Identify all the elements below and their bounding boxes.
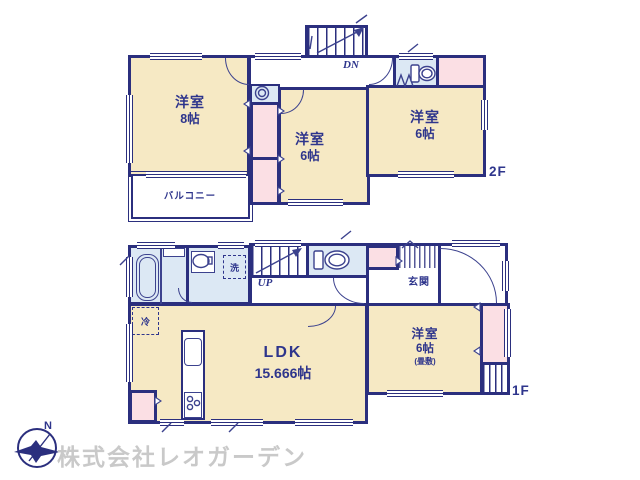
room-type: 洋室 bbox=[275, 130, 345, 148]
floor-2f-label: 2F bbox=[489, 163, 519, 181]
window bbox=[398, 171, 454, 178]
bathtub-icon bbox=[136, 254, 159, 301]
washbasin-2f bbox=[250, 84, 280, 104]
staircase-1f bbox=[249, 243, 309, 278]
room-2f-east-label: 洋室 6帖 bbox=[390, 108, 460, 142]
toilet-room-1f bbox=[306, 243, 369, 278]
room-size: 6帖 bbox=[390, 126, 460, 142]
closet-ldk bbox=[129, 390, 157, 423]
window bbox=[399, 53, 433, 60]
room-2f-west-label: 洋室 8帖 bbox=[150, 93, 230, 127]
window bbox=[255, 53, 301, 60]
room-type: 洋室 bbox=[385, 326, 465, 342]
window bbox=[126, 257, 133, 297]
company-watermark: 株式会社レオガーデン bbox=[57, 443, 477, 473]
washbasin-icon bbox=[191, 251, 215, 273]
bath-counter bbox=[163, 248, 185, 257]
bath-partition bbox=[160, 248, 162, 304]
window bbox=[218, 242, 244, 249]
window bbox=[150, 53, 202, 60]
room-size: 8帖 bbox=[150, 111, 230, 127]
window bbox=[295, 419, 353, 426]
closet-2f-northeast bbox=[436, 55, 486, 88]
window bbox=[126, 95, 133, 163]
window bbox=[504, 309, 511, 357]
kitchen-sink-icon bbox=[184, 338, 202, 366]
refrigerator-label: 冷 bbox=[141, 315, 150, 328]
window bbox=[137, 242, 175, 249]
refrigerator-space: 冷 bbox=[132, 307, 159, 335]
window bbox=[255, 240, 301, 247]
kitchen-stove-icon bbox=[184, 392, 202, 418]
room-type: LDK bbox=[228, 343, 338, 364]
entrance-step-hatch bbox=[399, 246, 439, 268]
compass-north-label: N bbox=[40, 419, 56, 433]
window bbox=[481, 100, 488, 130]
floor-1f-label: 1F bbox=[512, 382, 542, 400]
stairs-1f-corner bbox=[480, 362, 510, 395]
window bbox=[452, 240, 500, 247]
window bbox=[502, 261, 509, 291]
window bbox=[160, 419, 184, 426]
compass-icon bbox=[14, 429, 60, 467]
stairs-down-label: DN bbox=[338, 58, 364, 72]
room-size: 15.666帖 bbox=[228, 364, 338, 382]
entrance-label: 玄関 bbox=[398, 276, 440, 289]
staircase-2f bbox=[305, 25, 368, 58]
shoe-closet bbox=[366, 245, 399, 270]
room-note: (畳敷) bbox=[385, 357, 465, 367]
floorplan-canvas: 洗 冷 bbox=[0, 0, 640, 480]
stairs-up-label: UP bbox=[252, 276, 278, 290]
laundry-space: 洗 bbox=[223, 255, 246, 279]
room-2f-center-label: 洋室 6帖 bbox=[275, 130, 345, 164]
window-balcony-door bbox=[146, 171, 246, 178]
window bbox=[126, 324, 133, 382]
room-size: 6帖 bbox=[275, 148, 345, 164]
room-type: 洋室 bbox=[390, 108, 460, 126]
laundry-label: 洗 bbox=[230, 261, 239, 274]
room-size: 6帖 bbox=[385, 342, 465, 357]
balcony-label: バルコニー bbox=[131, 191, 249, 203]
ldk-label: LDK 15.666帖 bbox=[228, 343, 338, 382]
window bbox=[211, 419, 263, 426]
room-1f-east-label: 洋室 6帖 (畳敷) bbox=[385, 326, 465, 368]
window bbox=[387, 390, 443, 397]
room-type: 洋室 bbox=[150, 93, 230, 111]
window bbox=[288, 199, 343, 206]
